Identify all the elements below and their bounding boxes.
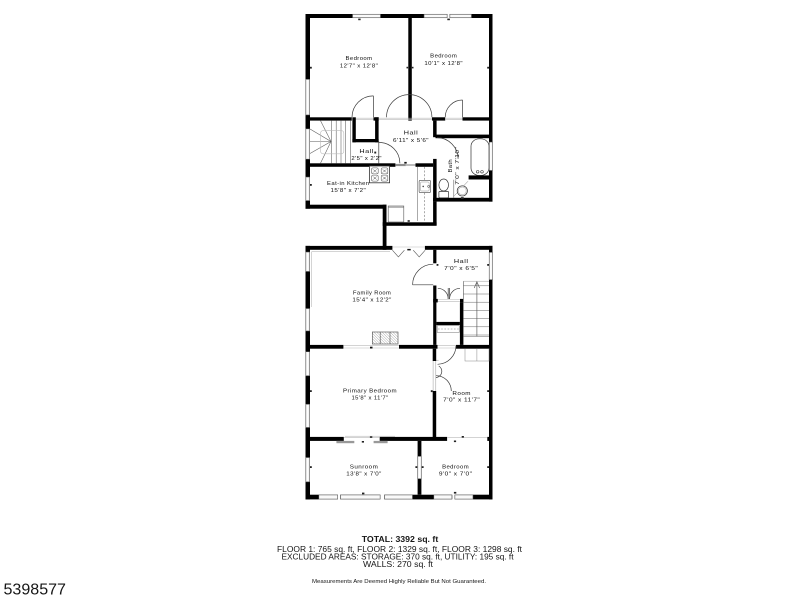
svg-text:9'0" x 7'0": 9'0" x 7'0" <box>439 472 473 478</box>
svg-text:7'0" x 11'7": 7'0" x 11'7" <box>443 398 480 404</box>
svg-text:15'8" x 7'2": 15'8" x 7'2" <box>331 188 367 194</box>
svg-text:13'8" x 7'0": 13'8" x 7'0" <box>346 472 382 478</box>
svg-text:2'5" x 2'2": 2'5" x 2'2" <box>351 156 382 162</box>
svg-text:Family Room: Family Room <box>353 290 391 296</box>
svg-text:Hall: Hall <box>359 149 374 155</box>
svg-text:7'0" x 6'5": 7'0" x 6'5" <box>444 266 478 272</box>
svg-text:15'4" x 12'2": 15'4" x 12'2" <box>352 297 391 303</box>
svg-text:12'7" x 12'8": 12'7" x 12'8" <box>340 63 378 69</box>
svg-text:TOTAL: 3392 sq. ft: TOTAL: 3392 sq. ft <box>362 535 439 544</box>
svg-text:Hall: Hall <box>454 259 469 265</box>
svg-text:10'1" x 12'8": 10'1" x 12'8" <box>424 61 463 67</box>
svg-text:6'11" x 5'6": 6'11" x 5'6" <box>393 138 429 144</box>
svg-text:Bedroom: Bedroom <box>442 465 469 471</box>
svg-text:Bath: Bath <box>448 159 454 173</box>
svg-text:Sunroom: Sunroom <box>350 465 379 471</box>
svg-text:Primary Bedroom: Primary Bedroom <box>343 388 397 394</box>
svg-text:Room: Room <box>452 391 471 397</box>
svg-text:Measurements Are Deemed Highly: Measurements Are Deemed Highly Reliable … <box>312 579 487 585</box>
svg-text:Hall: Hall <box>404 130 419 136</box>
svg-text:WALLS: 270 sq. ft: WALLS: 270 sq. ft <box>363 560 434 569</box>
svg-text:Bedroom: Bedroom <box>430 53 457 59</box>
svg-text:Eat-in Kitchen: Eat-in Kitchen <box>327 181 370 187</box>
svg-text:15'8" x 11'7": 15'8" x 11'7" <box>352 396 389 402</box>
svg-text:5398577: 5398577 <box>4 582 67 599</box>
svg-text:Bedroom: Bedroom <box>346 56 373 62</box>
svg-text:7'0" x 7'10": 7'0" x 7'10" <box>455 147 461 185</box>
